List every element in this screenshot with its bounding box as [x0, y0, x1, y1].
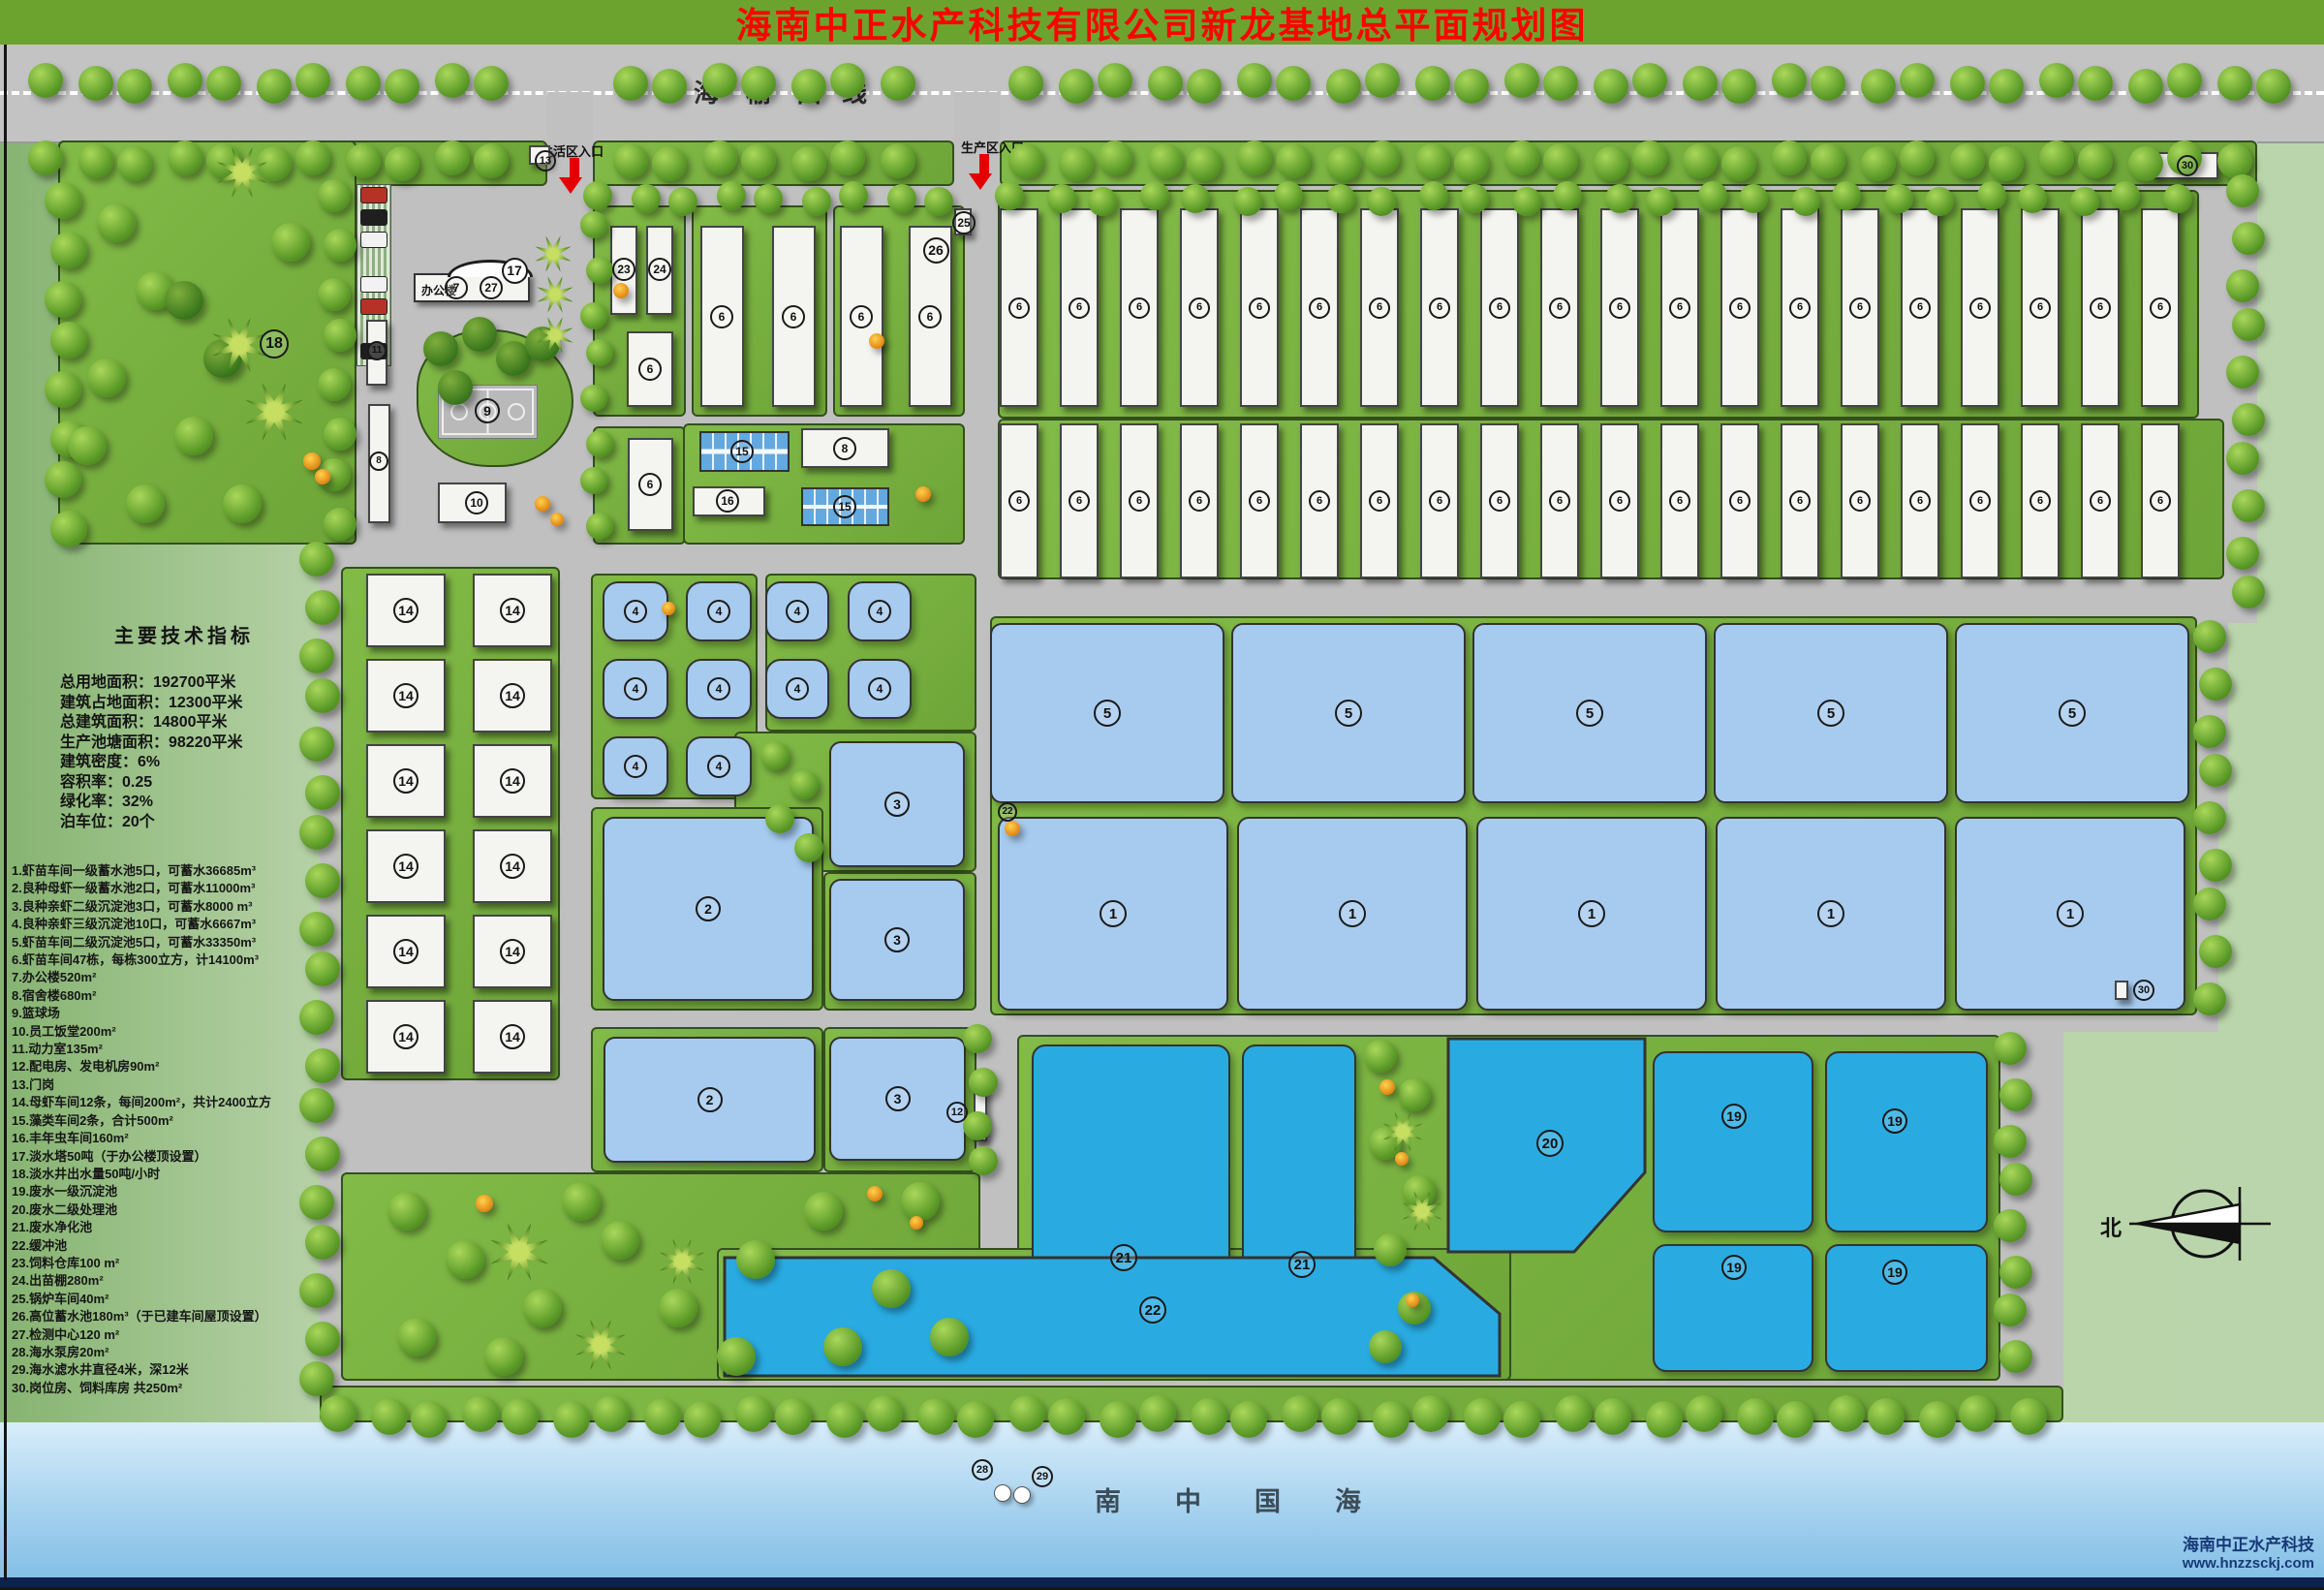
tree-icon — [435, 63, 470, 98]
indicator-line: 泊车位：20个 — [60, 813, 254, 833]
label-26: 26 — [923, 237, 949, 264]
tree-icon — [1683, 66, 1718, 101]
label-24: 24 — [648, 258, 671, 281]
tree-icon — [963, 1024, 992, 1053]
sea-area: 南 中 国 海 — [0, 1422, 2324, 1590]
building — [2115, 981, 2128, 1000]
label-14: 14 — [393, 598, 418, 623]
tree-icon — [1977, 181, 2006, 210]
label-14: 14 — [500, 854, 525, 879]
tree-icon — [168, 140, 202, 175]
tree-icon — [823, 1327, 862, 1366]
tree-icon — [2163, 184, 2192, 213]
label-2: 2 — [696, 896, 721, 921]
label-6: 6 — [1309, 490, 1330, 512]
legend-item: 6.虾苗车间47栋，每栋300立方，计14100m³ — [12, 951, 271, 969]
tree-icon — [668, 187, 697, 216]
label-6: 6 — [638, 358, 662, 381]
tree-icon — [2199, 849, 2232, 882]
label-6: 6 — [1969, 490, 1991, 512]
label-6: 6 — [1489, 490, 1510, 512]
label-3: 3 — [885, 1086, 911, 1111]
label-6: 6 — [918, 305, 942, 328]
tree-icon — [765, 804, 794, 833]
label-9: 9 — [475, 398, 500, 423]
parked-car — [360, 209, 387, 226]
tree-icon — [257, 69, 292, 104]
legend-item: 27.检测中心120 m² — [12, 1326, 271, 1344]
tree-icon — [1811, 143, 1845, 178]
tree-icon — [1008, 1395, 1045, 1432]
page-title: 海南中正水产科技有限公司新龙基地总平面规划图 — [0, 0, 2324, 45]
tree-icon — [2128, 146, 2163, 181]
tree-icon — [1181, 184, 1210, 213]
label-6: 6 — [2030, 490, 2051, 512]
label-6: 6 — [1429, 490, 1450, 512]
tree-icon — [50, 322, 87, 359]
tree-icon — [318, 278, 351, 311]
tree-icon — [68, 426, 107, 465]
tree-icon — [1367, 187, 1396, 216]
label-6: 6 — [782, 305, 805, 328]
tree-icon — [1047, 184, 1076, 213]
label-14: 14 — [500, 683, 525, 708]
tree-icon — [165, 281, 203, 320]
tree-icon — [1989, 69, 2024, 104]
label-6: 6 — [1429, 297, 1450, 319]
tree-icon — [830, 140, 865, 175]
tree-icon — [50, 511, 87, 547]
label-5: 5 — [1817, 700, 1844, 727]
tree-icon — [1454, 69, 1489, 104]
tree-icon — [1994, 1294, 2027, 1326]
tree-icon — [1503, 1401, 1540, 1438]
legend-list: 1.虾苗车间一级蓄水池5口，可蓄水36685m³2.良种母虾一级蓄水池2口，可蓄… — [12, 862, 271, 1397]
label-4: 4 — [624, 755, 647, 778]
label-28: 28 — [972, 1459, 993, 1481]
tree-icon — [2256, 69, 2291, 104]
tree-icon — [735, 1395, 772, 1432]
label-21: 21 — [1288, 1251, 1316, 1278]
tree-icon — [969, 1068, 998, 1097]
tree-icon — [1555, 1395, 1592, 1432]
tree-icon — [741, 143, 776, 178]
pond-19 — [1653, 1051, 1813, 1232]
tree-icon — [2193, 715, 2226, 748]
tree-icon — [397, 1318, 436, 1356]
label-6: 6 — [1849, 490, 1871, 512]
tree-icon — [775, 1398, 812, 1435]
tree-icon — [963, 1111, 992, 1140]
shrub-icon — [869, 333, 884, 349]
label-6: 6 — [1129, 490, 1150, 512]
label-5: 5 — [2059, 700, 2086, 727]
label-6: 6 — [1008, 490, 1030, 512]
label-25: 25 — [952, 211, 976, 234]
legend-item: 26.高位蓄水池180m³（于已建车间屋顶设置） — [12, 1308, 271, 1325]
tree-icon — [1777, 1401, 1813, 1438]
tree-icon — [387, 1192, 426, 1231]
tree-icon — [2167, 63, 2202, 98]
tree-icon — [371, 1398, 408, 1435]
label-6: 6 — [638, 473, 662, 496]
tree-icon — [872, 1269, 911, 1308]
tree-icon — [1365, 63, 1400, 98]
tree-icon — [1989, 146, 2024, 181]
tree-icon — [299, 1185, 334, 1220]
label-4: 4 — [624, 677, 647, 701]
tree-icon — [830, 63, 865, 98]
tree-icon — [117, 69, 152, 104]
label-1: 1 — [1100, 900, 1127, 927]
tree-icon — [346, 66, 381, 101]
tree-icon — [1605, 184, 1634, 213]
legend-item: 19.废水一级沉淀池 — [12, 1183, 271, 1200]
credit-url: www.hnzzsckj.com — [2183, 1555, 2314, 1572]
tree-icon — [1326, 184, 1355, 213]
shrub-icon — [1395, 1152, 1409, 1166]
legend-item: 10.员工饭堂200m² — [12, 1023, 271, 1041]
label-6: 6 — [1549, 490, 1570, 512]
tree-icon — [28, 63, 63, 98]
tree-icon — [1772, 63, 1807, 98]
entrance-arrow-icon — [559, 177, 582, 194]
indicator-line: 容积率：0.25 — [60, 773, 254, 794]
tree-icon — [1832, 181, 1861, 210]
tree-icon — [1187, 69, 1222, 104]
tree-icon — [930, 1318, 969, 1356]
label-17: 17 — [502, 258, 528, 284]
sea-name-char: 南 — [1095, 1481, 1121, 1518]
tree-icon — [1191, 1398, 1227, 1435]
shrub-icon — [915, 486, 931, 502]
tree-icon — [1419, 181, 1448, 210]
legend-item: 30.岗位房、饲料库房 共250m² — [12, 1380, 271, 1397]
label-4: 4 — [786, 677, 809, 701]
tree-icon — [299, 1273, 334, 1308]
label-3: 3 — [884, 927, 910, 952]
tree-icon — [791, 69, 826, 104]
tree-icon — [446, 1240, 484, 1279]
legend-item: 13.门岗 — [12, 1076, 271, 1094]
label-4: 4 — [707, 600, 730, 623]
shrub-icon — [910, 1216, 923, 1230]
tree-icon — [901, 1182, 940, 1221]
tree-icon — [702, 63, 737, 98]
tree-icon — [717, 1337, 756, 1376]
tree-icon — [586, 513, 613, 540]
tree-icon — [2010, 1398, 2047, 1435]
tree-icon — [1999, 1163, 2032, 1196]
label-14: 14 — [500, 939, 525, 964]
tree-icon — [1326, 146, 1361, 181]
tree-icon — [117, 146, 152, 181]
tree-icon — [790, 770, 819, 799]
tree-icon — [2232, 222, 2265, 255]
compass-icon — [2127, 1185, 2273, 1263]
tree-icon — [2226, 356, 2259, 389]
legend-item: 4.良种亲虾三级沉淀池10口，可蓄水6667m³ — [12, 916, 271, 933]
shrub-icon — [613, 283, 629, 298]
label-7: 7 — [445, 276, 468, 299]
tree-icon — [601, 1221, 639, 1260]
tree-icon — [1646, 1401, 1683, 1438]
shrub-icon — [535, 496, 550, 512]
tree-icon — [586, 430, 613, 457]
tree-icon — [881, 66, 915, 101]
label-6: 6 — [1789, 297, 1811, 319]
label-6: 6 — [1969, 297, 1991, 319]
tree-icon — [346, 143, 381, 178]
tree-icon — [2217, 143, 2252, 178]
tree-icon — [1861, 146, 1896, 181]
tree-icon — [1900, 140, 1935, 175]
legend-item: 28.海水泵房20m² — [12, 1344, 271, 1361]
tree-icon — [1059, 69, 1094, 104]
tree-icon — [50, 232, 87, 268]
indicator-line: 总用地面积：192700平米 — [60, 673, 254, 694]
tree-icon — [826, 1401, 863, 1438]
label-6: 6 — [1309, 297, 1330, 319]
tree-icon — [2226, 442, 2259, 475]
label-5: 5 — [1335, 700, 1362, 727]
indicator-line: 建筑密度：6% — [60, 753, 254, 773]
tree-icon — [1504, 140, 1539, 175]
tree-icon — [435, 140, 470, 175]
label-13: 13 — [535, 150, 556, 171]
label-27: 27 — [480, 276, 503, 299]
tree-icon — [87, 359, 126, 397]
label-6: 6 — [2090, 490, 2111, 512]
tree-icon — [1369, 1330, 1402, 1363]
green-block — [998, 190, 2199, 419]
tree-icon — [168, 63, 202, 98]
tree-icon — [462, 317, 497, 352]
tree-icon — [305, 1225, 340, 1260]
tree-icon — [1925, 187, 1954, 216]
label-6: 6 — [710, 305, 733, 328]
legend-item: 5.虾苗车间二级沉淀池5口，可蓄水33350m³ — [12, 934, 271, 951]
label-6: 6 — [2090, 297, 2111, 319]
tree-icon — [1148, 143, 1183, 178]
tree-icon — [684, 1401, 721, 1438]
tree-icon — [295, 140, 330, 175]
label-19: 19 — [1882, 1260, 1907, 1285]
label-19: 19 — [1721, 1255, 1747, 1280]
tree-icon — [1994, 1209, 2027, 1242]
tree-icon — [652, 69, 687, 104]
label-8: 8 — [369, 452, 388, 471]
indicator-line: 总建筑面积：14800平米 — [60, 713, 254, 733]
label-4: 4 — [707, 677, 730, 701]
tree-icon — [1008, 143, 1043, 178]
shrub-icon — [1005, 821, 1020, 836]
legend-item: 15.藻类车间2条，合计500m² — [12, 1112, 271, 1130]
label-6: 6 — [1669, 490, 1690, 512]
tree-icon — [305, 863, 340, 898]
label-1: 1 — [1578, 900, 1605, 927]
entrance-arrow-icon — [570, 158, 579, 177]
label-6: 6 — [1189, 490, 1210, 512]
tree-icon — [887, 184, 916, 213]
tree-icon — [1950, 143, 1985, 178]
tree-icon — [305, 678, 340, 713]
technical-indicators-panel: 主要技术指标 总用地面积：192700平米建筑占地面积：12300平米总建筑面积… — [60, 620, 254, 832]
tree-icon — [1230, 1401, 1267, 1438]
tree-icon — [484, 1337, 523, 1376]
label-3: 3 — [884, 792, 910, 817]
shrub-icon — [303, 452, 321, 470]
tree-icon — [717, 181, 746, 210]
tree-icon — [1276, 143, 1311, 178]
label-6: 6 — [1249, 490, 1270, 512]
entrance-arrow-icon — [979, 154, 989, 173]
label-6: 6 — [2030, 297, 2051, 319]
label-14: 14 — [500, 1024, 525, 1049]
tree-icon — [474, 143, 509, 178]
tree-icon — [126, 484, 165, 523]
tree-icon — [613, 66, 648, 101]
label-6: 6 — [1729, 490, 1751, 512]
indicators-title: 主要技术指标 — [114, 620, 254, 648]
tree-icon — [1148, 66, 1183, 101]
tree-icon — [1721, 69, 1756, 104]
label-4: 4 — [868, 677, 891, 701]
credit-block: 海南中正水产科技 www.hnzzsckj.com — [2183, 1531, 2314, 1572]
tree-icon — [318, 179, 351, 212]
tree-icon — [299, 639, 334, 673]
tree-icon — [324, 418, 356, 451]
legend-item: 12.配电房、发电机房90m² — [12, 1058, 271, 1076]
tree-icon — [1683, 143, 1718, 178]
label-6: 6 — [1669, 297, 1690, 319]
tree-icon — [299, 1361, 334, 1396]
label-16: 16 — [716, 489, 739, 513]
legend-item: 18.淡水井出水量50吨/小时 — [12, 1166, 271, 1183]
tree-icon — [324, 229, 356, 262]
tree-icon — [2226, 537, 2259, 570]
tree-icon — [1233, 187, 1262, 216]
label-6: 6 — [1129, 297, 1150, 319]
tree-icon — [2070, 187, 2099, 216]
tree-icon — [2226, 174, 2259, 207]
tree-icon — [523, 1289, 562, 1327]
legend-item: 17.淡水塔50吨（于办公楼顶设置） — [12, 1148, 271, 1166]
label-14: 14 — [393, 1024, 418, 1049]
label-22: 22 — [1139, 1296, 1166, 1324]
label-11: 11 — [367, 341, 387, 360]
tree-icon — [1543, 66, 1578, 101]
tree-icon — [1686, 1395, 1722, 1432]
tree-icon — [1100, 1401, 1136, 1438]
tree-icon — [2111, 181, 2140, 210]
tree-icon — [881, 143, 915, 178]
tree-icon — [1365, 140, 1400, 175]
tree-icon — [1900, 63, 1935, 98]
tree-icon — [1276, 66, 1311, 101]
tree-icon — [652, 146, 687, 181]
tree-icon — [438, 370, 473, 405]
credit-company: 海南中正水产科技 — [2183, 1531, 2314, 1555]
tree-icon — [318, 368, 351, 401]
tree-icon — [2039, 140, 2074, 175]
tree-icon — [320, 1395, 356, 1432]
tree-icon — [2217, 66, 2252, 101]
label-6: 6 — [1008, 297, 1030, 319]
label-6: 6 — [1609, 490, 1630, 512]
label-6: 6 — [1609, 297, 1630, 319]
parked-car — [360, 298, 387, 315]
sea-name-char: 中 — [1175, 1481, 1201, 1518]
tree-icon — [804, 1192, 843, 1231]
tree-icon — [1140, 181, 1169, 210]
shrub-icon — [476, 1195, 493, 1212]
tree-icon — [1282, 1395, 1318, 1432]
tree-icon — [1553, 181, 1582, 210]
legend-item: 7.办公楼520m² — [12, 969, 271, 986]
legend-item: 11.动力室135m² — [12, 1041, 271, 1058]
tree-icon — [1999, 1078, 2032, 1111]
tree-icon — [1861, 69, 1896, 104]
shrub-icon — [550, 513, 564, 526]
tree-icon — [45, 182, 81, 219]
label-6: 6 — [1849, 297, 1871, 319]
tree-icon — [1460, 184, 1489, 213]
frame-line — [4, 45, 7, 1580]
tree-icon — [411, 1401, 448, 1438]
tree-icon — [2018, 184, 2047, 213]
tree-icon — [2193, 801, 2226, 834]
green-block — [58, 140, 356, 545]
tree-icon — [305, 590, 340, 625]
label-14: 14 — [393, 768, 418, 794]
label-14: 14 — [500, 598, 525, 623]
tree-icon — [580, 385, 607, 412]
tree-icon — [1398, 1078, 1431, 1111]
label-6: 6 — [1369, 297, 1390, 319]
label-12: 12 — [946, 1102, 968, 1123]
tree-icon — [28, 140, 63, 175]
tree-icon — [1868, 1398, 1905, 1435]
tree-icon — [1721, 146, 1756, 181]
tree-icon — [1739, 184, 1768, 213]
tree-icon — [1415, 66, 1450, 101]
label-5: 5 — [1094, 700, 1121, 727]
indicator-line: 生产池塘面积：98220平米 — [60, 733, 254, 754]
label-20: 20 — [1536, 1130, 1564, 1157]
legend-item: 23.饲料仓库100 m² — [12, 1255, 271, 1272]
label-6: 6 — [1489, 297, 1510, 319]
tree-icon — [1772, 140, 1807, 175]
tree-icon — [580, 302, 607, 329]
tree-icon — [1632, 63, 1667, 98]
tree-icon — [1504, 63, 1539, 98]
tree-icon — [1088, 187, 1117, 216]
label-4: 4 — [707, 755, 730, 778]
tree-icon — [760, 741, 790, 770]
legend-item: 3.良种亲虾二级沉淀池3口，可蓄水8000 m³ — [12, 898, 271, 916]
tree-icon — [1059, 146, 1094, 181]
tree-icon — [1594, 146, 1628, 181]
tree-icon — [1959, 1395, 1996, 1432]
tree-icon — [305, 951, 340, 986]
tree-icon — [1543, 143, 1578, 178]
shrub-icon — [1379, 1079, 1395, 1095]
tree-icon — [223, 484, 262, 523]
label-23: 23 — [612, 258, 635, 281]
tree-icon — [613, 143, 648, 178]
tree-icon — [1698, 181, 1727, 210]
